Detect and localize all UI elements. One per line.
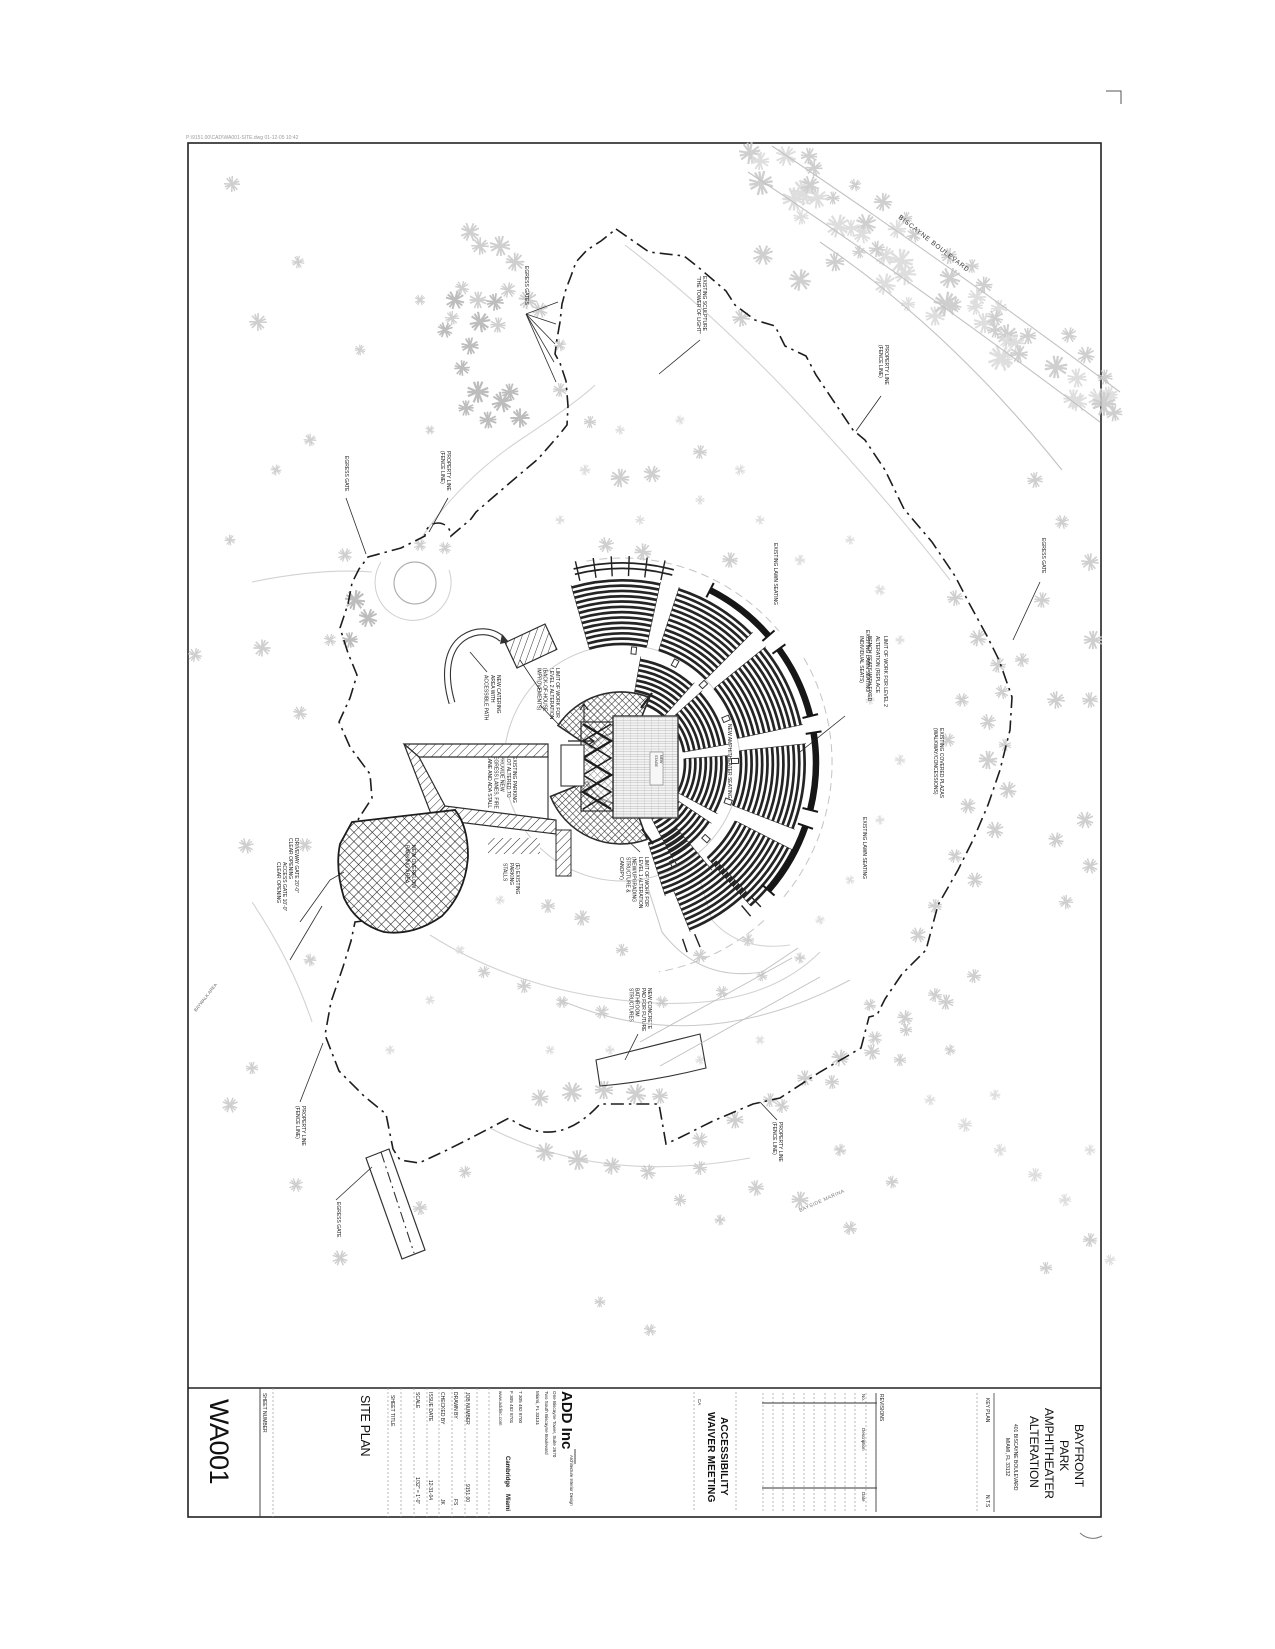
svg-text:P:\9151.00\CAD\WA001-SITE.dwg: P:\9151.00\CAD\WA001-SITE.dwg 01-12-05 1… — [186, 135, 299, 141]
svg-text:EGRESS LANES, FIRE: EGRESS LANES, FIRE — [492, 756, 498, 809]
svg-text:FS: FS — [452, 1499, 458, 1506]
svg-text:AMPHITHEATER: AMPHITHEATER — [1042, 1408, 1056, 1499]
svg-text:PAD FOR FUTURE: PAD FOR FUTURE — [640, 988, 646, 1032]
svg-text:CANOPY): CANOPY) — [618, 857, 624, 880]
svg-text:AREA WITH: AREA WITH — [489, 675, 495, 703]
svg-text:PARKING: PARKING — [508, 863, 514, 885]
svg-text:ADD Inc: ADD Inc — [558, 1391, 575, 1449]
svg-text:MIAMI, FL 33132: MIAMI, FL 33132 — [1004, 1438, 1010, 1476]
svg-text:BATHROOM: BATHROOM — [634, 988, 640, 1017]
svg-text:Cambridge: Cambridge — [504, 1456, 510, 1488]
svg-text:JK: JK — [439, 1499, 445, 1506]
svg-text:EXISTING LAWN SEATING: EXISTING LAWN SEATING — [772, 543, 778, 605]
svg-text:LEVEL 1 ALTERATION: LEVEL 1 ALTERATION — [637, 857, 643, 909]
svg-text:www.addinc.com: www.addinc.com — [498, 1391, 503, 1426]
svg-text:WA001: WA001 — [204, 1399, 234, 1484]
svg-text:EGRESS GATE: EGRESS GATE — [335, 1202, 341, 1238]
svg-text:EXISTING SCULPTURE: EXISTING SCULPTURE — [701, 276, 707, 332]
svg-text:LIMIT OF WORK FOR: LIMIT OF WORK FOR — [554, 668, 560, 718]
svg-text:(FENCE LINE): (FENCE LINE) — [439, 451, 445, 484]
svg-text:No.: No. — [861, 1394, 866, 1401]
svg-text:Miami: Miami — [504, 1494, 510, 1511]
svg-text:DRIVEWAY GATE 20'-0”: DRIVEWAY GATE 20'-0” — [293, 838, 299, 893]
svg-text:SHEET TITLE: SHEET TITLE — [389, 1395, 395, 1427]
svg-text:(NEW/UPGRADING: (NEW/UPGRADING — [631, 857, 637, 902]
svg-text:(FENCE LINE): (FENCE LINE) — [771, 1122, 777, 1155]
svg-text:NEW CATERING: NEW CATERING — [495, 675, 501, 714]
svg-text:(FENCE LINE): (FENCE LINE) — [294, 1106, 300, 1139]
svg-text:LANE AND ADA STALL: LANE AND ADA STALL — [486, 756, 492, 808]
svg-text:LIMIT OF WORK FOR LEVEL 2: LIMIT OF WORK FOR LEVEL 2 — [882, 636, 888, 707]
svg-text:SITE PLAN: SITE PLAN — [358, 1395, 372, 1456]
svg-text:(WALKWAY/CONCESSIONS): (WALKWAY/CONCESSIONS) — [932, 728, 938, 795]
svg-text:ACCESSIBILITY: ACCESSIBILITY — [718, 1417, 729, 1496]
svg-text:CHECKED BY: CHECKED BY — [439, 1392, 445, 1425]
svg-text:ALTERATION (REPLACE: ALTERATION (REPLACE — [874, 636, 880, 694]
svg-text:PARK: PARK — [1057, 1440, 1071, 1471]
svg-text:EGRESS GATE: EGRESS GATE — [343, 456, 349, 492]
svg-text:401 BISCAYNE BOULEVARD: 401 BISCAYNE BOULEVARD — [1012, 1424, 1018, 1491]
svg-text:EXISTING LAWN SEATING: EXISTING LAWN SEATING — [861, 817, 867, 879]
svg-text:DRAWN BY: DRAWN BY — [452, 1392, 458, 1419]
svg-text:STRUCTURE &: STRUCTURE & — [624, 857, 630, 893]
svg-text:SHEET NUMBER: SHEET NUMBER — [261, 1393, 267, 1433]
svg-text:WAIVER MEETING: WAIVER MEETING — [705, 1412, 716, 1503]
svg-text:JOB NUMBER: JOB NUMBER — [464, 1392, 470, 1425]
svg-text:9151.00: 9151.00 — [464, 1484, 470, 1502]
svg-text:(E) EXISTING: (E) EXISTING — [514, 863, 520, 895]
svg-text:Miami, FL 33131: Miami, FL 33131 — [535, 1391, 540, 1425]
svg-text:Date: Date — [861, 1492, 866, 1502]
svg-text:KEY PLAN: KEY PLAN — [984, 1398, 990, 1423]
svg-text:ISSUE DATE: ISSUE DATE — [427, 1392, 433, 1422]
svg-text:ALTERATION: ALTERATION — [1027, 1416, 1041, 1488]
svg-text:CLEAR OPENING: CLEAR OPENING — [275, 862, 281, 903]
svg-text:SCALE: SCALE — [414, 1392, 420, 1409]
svg-text:STRUCTURES: STRUCTURES — [627, 988, 633, 1023]
svg-text:T 305 482 8700: T 305 482 8700 — [518, 1391, 523, 1424]
svg-text:“THE TOWER OF LIGHT”: “THE TOWER OF LIGHT” — [695, 276, 701, 334]
svg-text:Two South Biscayne Boulevard: Two South Biscayne Boulevard — [544, 1391, 549, 1455]
svg-text:CA: CA — [697, 1399, 702, 1405]
svg-text:LIMIT OF WORK FOR: LIMIT OF WORK FOR — [643, 857, 649, 907]
svg-text:F 305 482 8701: F 305 482 8701 — [509, 1391, 514, 1424]
svg-text:NEW: NEW — [659, 755, 663, 764]
svg-text:Architecture Interior Design: Architecture Interior Design — [569, 1455, 574, 1506]
svg-text:EXISTING COVERED PLAZAS: EXISTING COVERED PLAZAS — [938, 728, 944, 799]
svg-text:1/32" = 1'-0": 1/32" = 1'-0" — [414, 1477, 420, 1504]
svg-text:STAGE: STAGE — [654, 755, 658, 768]
svg-text:BENCH SEATS WITH FIXED: BENCH SEATS WITH FIXED — [866, 636, 872, 702]
svg-text:PARKING AREA: PARKING AREA — [404, 845, 410, 884]
svg-text:ACCESS GATE 10'-0”: ACCESS GATE 10'-0” — [281, 862, 287, 912]
svg-text:PROPERTY LINE: PROPERTY LINE — [300, 1106, 306, 1146]
svg-text:STALLS: STALLS — [502, 863, 508, 882]
svg-text:(FENCE LINE): (FENCE LINE) — [877, 345, 883, 378]
svg-text:EGRESS GATES: EGRESS GATES — [523, 266, 529, 305]
svg-text:12-31-04: 12-31-04 — [427, 1480, 433, 1500]
svg-text:BAYFRONT: BAYFRONT — [1072, 1424, 1086, 1488]
svg-text:INDIVIDUAL SEATS): INDIVIDUAL SEATS) — [858, 636, 864, 683]
svg-text:One Biscayne Tower, Suite 2670: One Biscayne Tower, Suite 2670 — [552, 1391, 557, 1458]
svg-text:IMPROVEMENTS): IMPROVEMENTS) — [535, 668, 541, 711]
svg-text:ACCESSIBLE PATH: ACCESSIBLE PATH — [483, 675, 489, 721]
svg-text:PROPERTY LINE: PROPERTY LINE — [445, 451, 451, 491]
svg-text:PROPERTY LINE: PROPERTY LINE — [777, 1122, 783, 1162]
svg-text:LEVEL 2 ALTERATION: LEVEL 2 ALTERATION — [548, 668, 554, 720]
svg-text:EXISTING PARKING: EXISTING PARKING — [511, 756, 517, 803]
svg-text:PROPERTY LINE: PROPERTY LINE — [883, 345, 889, 385]
svg-text:REVISIONS: REVISIONS — [878, 1394, 884, 1422]
svg-text:N.T.S: N.T.S — [984, 1495, 990, 1508]
svg-text:Description: Description — [861, 1428, 866, 1451]
svg-text:(BACK-OF-HOUSE: (BACK-OF-HOUSE — [542, 668, 548, 712]
svg-text:EGRESS GATE: EGRESS GATE — [1040, 538, 1046, 574]
svg-text:NEW OVERFLOW: NEW OVERFLOW — [410, 845, 416, 888]
